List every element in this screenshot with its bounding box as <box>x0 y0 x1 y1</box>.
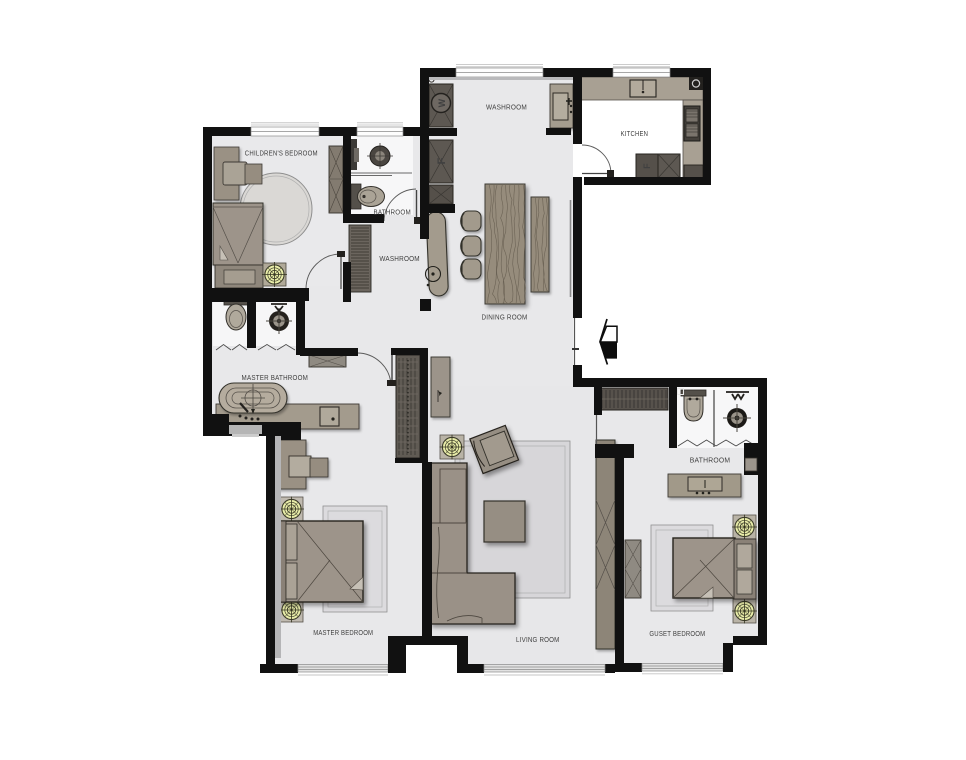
svg-text:WASHROOM: WASHROOM <box>379 254 420 263</box>
svg-text:BATHROOM: BATHROOM <box>690 456 731 465</box>
svg-text:F: F <box>436 157 448 164</box>
svg-text:WASHROOM: WASHROOM <box>486 103 527 112</box>
svg-text:W: W <box>437 98 447 107</box>
svg-text:KITCHEN: KITCHEN <box>621 129 649 138</box>
svg-text:LIVING ROOM: LIVING ROOM <box>516 635 560 644</box>
svg-text:DINING ROOM: DINING ROOM <box>482 313 528 322</box>
svg-text:CHILDREN'S BEDROOM: CHILDREN'S BEDROOM <box>245 149 318 158</box>
svg-text:GUSET BEDROOM: GUSET BEDROOM <box>649 629 705 638</box>
svg-text:BATHROOM: BATHROOM <box>373 208 411 217</box>
svg-text:MASTER BEDROOM: MASTER BEDROOM <box>313 628 373 637</box>
svg-text:MASTER BATHROOM: MASTER BATHROOM <box>242 373 309 382</box>
svg-text:F: F <box>642 163 652 169</box>
